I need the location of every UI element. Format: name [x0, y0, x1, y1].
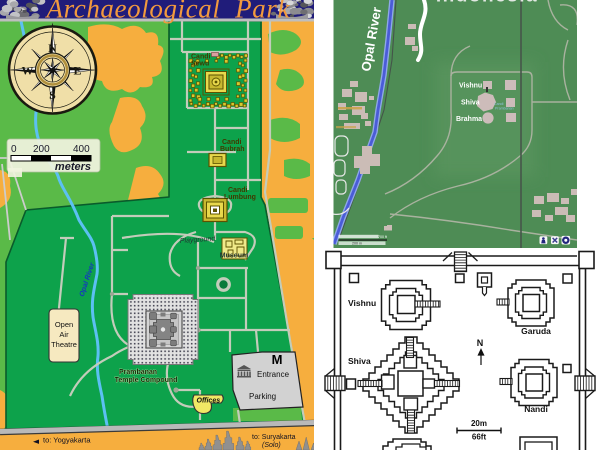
svg-text:66ft: 66ft — [472, 433, 487, 442]
svg-text:S: S — [49, 88, 56, 102]
svg-text:meters: meters — [55, 161, 91, 173]
svg-text:700 ft: 700 ft — [378, 235, 387, 239]
svg-text:200: 200 — [33, 144, 50, 155]
svg-text:Temple Compound: Temple Compound — [115, 377, 178, 384]
svg-text:20m: 20m — [471, 419, 487, 428]
svg-text:Candi: Candi — [191, 54, 211, 61]
svg-text:Indonesia: Indonesia — [436, 0, 538, 7]
svg-text:0: 0 — [11, 144, 17, 155]
svg-text:Shiva: Shiva — [461, 100, 480, 107]
svg-text:Candi: Candi — [494, 102, 504, 106]
svg-text:Vishnu: Vishnu — [348, 298, 376, 308]
svg-text:Archaeological Park: Archaeological Park — [45, 0, 291, 24]
svg-text:Museum: Museum — [220, 253, 248, 260]
svg-text:Nandi: Nandi — [524, 404, 548, 414]
svg-text:200 m: 200 m — [352, 241, 362, 245]
svg-text:Vishnu: Vishnu — [459, 83, 482, 90]
svg-text:to: Yogyakarta: to: Yogyakarta — [43, 436, 91, 445]
svg-text:Offices: Offices — [197, 398, 221, 405]
svg-text:Parking: Parking — [249, 392, 276, 401]
svg-text:Lumbung: Lumbung — [224, 194, 256, 201]
svg-text:N: N — [48, 41, 57, 55]
svg-text:Prambanan: Prambanan — [119, 369, 157, 376]
svg-text:400: 400 — [73, 144, 90, 155]
svg-text:(Solo): (Solo) — [262, 442, 281, 449]
svg-text:Brahma: Brahma — [456, 116, 482, 123]
svg-text:to: Suryakarta: to: Suryakarta — [252, 434, 296, 441]
svg-text:Open: Open — [55, 320, 73, 329]
svg-text:N: N — [477, 338, 484, 348]
svg-text:Garuda: Garuda — [521, 326, 551, 336]
svg-text:E: E — [73, 64, 81, 78]
svg-text:Entrance: Entrance — [257, 370, 290, 379]
svg-text:Air: Air — [59, 330, 69, 339]
svg-text:Theatre: Theatre — [51, 340, 77, 349]
svg-text:Prambanan: Prambanan — [495, 107, 514, 111]
svg-text:Bubrah: Bubrah — [220, 146, 245, 153]
svg-text:Sewu: Sewu — [191, 61, 209, 68]
svg-text:Candi: Candi — [228, 187, 248, 194]
svg-text:M: M — [272, 352, 283, 367]
svg-text:W: W — [22, 64, 34, 78]
svg-text:Candi: Candi — [222, 139, 242, 146]
svg-text:Shiva: Shiva — [348, 356, 371, 366]
